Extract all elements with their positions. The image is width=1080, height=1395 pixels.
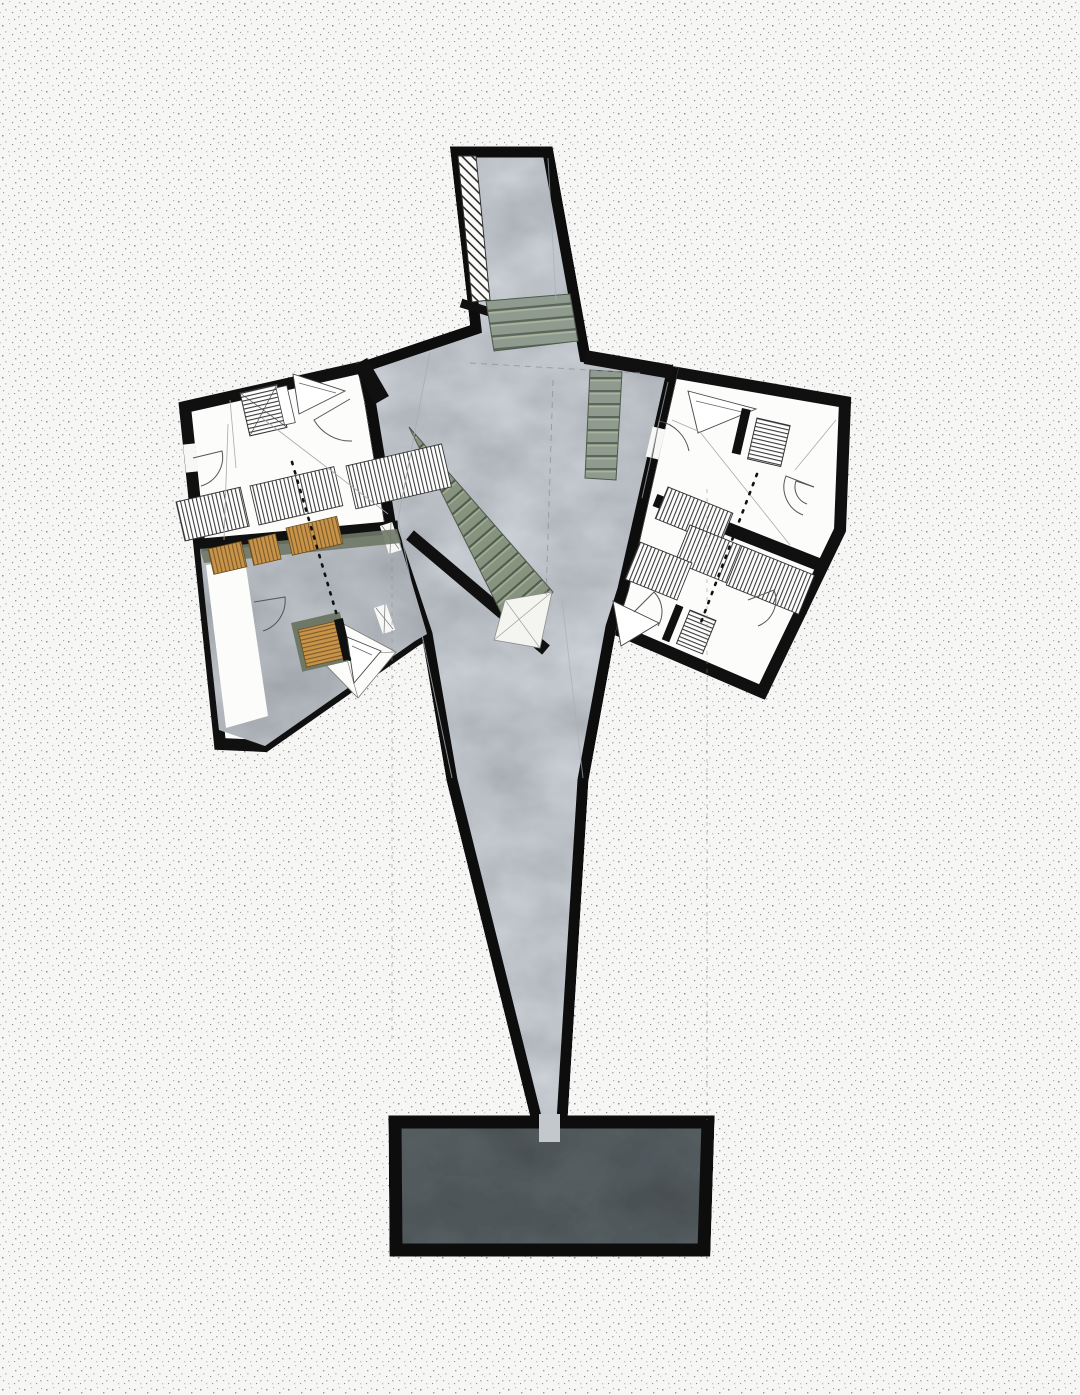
opening-left-wing-west-door	[189, 444, 192, 472]
stem-landing	[539, 1114, 560, 1142]
stair-flight-east	[585, 370, 622, 480]
architectural-floor-plan	[0, 0, 1080, 1395]
terrace-slab	[395, 1114, 708, 1250]
stair-flight-corridor	[486, 294, 578, 351]
floor-plan-page	[0, 0, 1080, 1395]
